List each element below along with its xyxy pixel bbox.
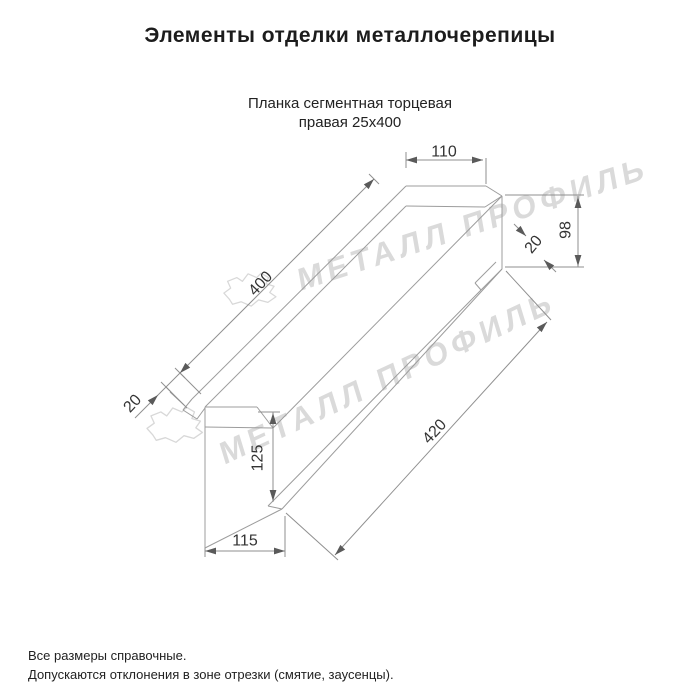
dimension-arrow bbox=[472, 157, 483, 164]
dim-label-20: 20 bbox=[121, 391, 146, 416]
dimension-line bbox=[286, 513, 338, 560]
part-edge-line bbox=[486, 186, 502, 196]
dimension-arrow bbox=[406, 157, 417, 164]
dimension-line bbox=[180, 373, 201, 394]
part-edge-line bbox=[282, 269, 502, 509]
part-edge-line bbox=[183, 410, 197, 419]
dim-label-400: 400 bbox=[245, 268, 276, 299]
dimension-arrow bbox=[274, 548, 285, 555]
dim-label-20: 20 bbox=[522, 232, 547, 257]
footer-note-line2: Допускаются отклонения в зоне отрезки (с… bbox=[28, 665, 394, 684]
part-edge-line bbox=[268, 506, 282, 509]
part-edge-line bbox=[197, 408, 205, 419]
footer-notes: Все размеры справочные. Допускаются откл… bbox=[28, 646, 394, 684]
dim-label-110: 110 bbox=[431, 144, 457, 161]
dimension-arrow bbox=[205, 548, 216, 555]
part-edge-line bbox=[475, 283, 481, 290]
dim-label-115: 115 bbox=[232, 533, 258, 550]
dim-label-125: 125 bbox=[250, 445, 267, 472]
watermark-text: МЕТАЛЛ ПРОФИЛЬ bbox=[295, 150, 651, 298]
part-edge-line bbox=[475, 262, 496, 283]
footer-note-line1: Все размеры справочные. bbox=[28, 646, 394, 665]
dim-label-420: 420 bbox=[419, 416, 450, 447]
technical-drawing: МЕТАЛЛ ПРОФИЛЬМЕТАЛЛ ПРОФИЛЬ110982040042… bbox=[0, 0, 700, 700]
dimension-arrow bbox=[270, 490, 277, 501]
dimension-arrow bbox=[575, 255, 582, 266]
dimension-arrow bbox=[333, 545, 346, 558]
watermark-text: МЕТАЛЛ ПРОФИЛЬ bbox=[216, 283, 560, 472]
dimension-line bbox=[166, 387, 187, 408]
watermark-cloud-icon bbox=[147, 407, 202, 442]
catalog-page: { "header": { "title": "Элементы отделки… bbox=[0, 0, 700, 700]
dim-label-98: 98 bbox=[558, 221, 575, 239]
